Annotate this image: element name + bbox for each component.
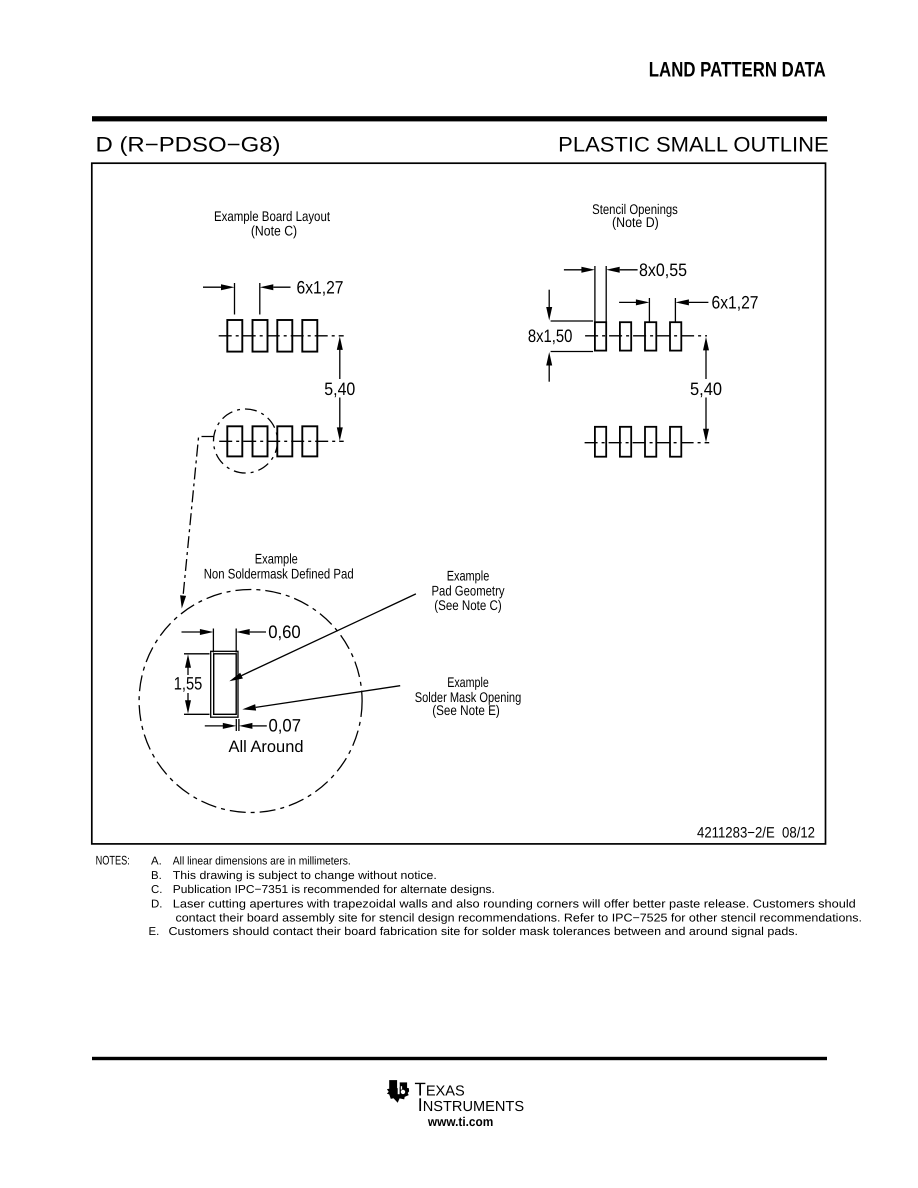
svg-text:www.ti.com: www.ti.com	[427, 1114, 493, 1129]
svg-text:All linear dimensions are in m: All linear dimensions are in millimeters…	[173, 856, 351, 868]
svg-text:5,40: 5,40	[690, 379, 722, 399]
svg-text:Example: Example	[447, 568, 490, 584]
svg-text:D.: D.	[151, 898, 162, 910]
svg-text:NOTES:: NOTES:	[96, 854, 130, 868]
svg-text:6x1,27: 6x1,27	[297, 278, 344, 298]
svg-text:(Note D): (Note D)	[612, 214, 659, 230]
svg-text:A.: A.	[151, 856, 162, 868]
svg-text:B.: B.	[151, 870, 162, 882]
svg-text:Example Board Layout: Example Board Layout	[214, 208, 330, 224]
svg-text:D (R−PDSO−G8): D (R−PDSO−G8)	[96, 134, 281, 157]
svg-text:All Around: All Around	[229, 738, 304, 756]
svg-text:6x1,27: 6x1,27	[712, 293, 759, 313]
svg-text:4211283−2/E 08/12: 4211283−2/E 08/12	[697, 825, 815, 842]
svg-text:E.: E.	[149, 926, 160, 938]
svg-text:This drawing is subject to cha: This drawing is subject to change withou…	[173, 870, 437, 882]
svg-text:Example: Example	[447, 674, 489, 690]
svg-text:1,55: 1,55	[174, 674, 203, 694]
svg-text:Non Soldermask Defined Pad: Non Soldermask Defined Pad	[204, 565, 354, 581]
svg-text:(Note C): (Note C)	[251, 223, 297, 239]
svg-text:(See Note C): (See Note C)	[434, 597, 502, 613]
svg-text:Example: Example	[255, 551, 298, 567]
svg-text:8x0,55: 8x0,55	[639, 260, 687, 280]
svg-text:PLASTIC SMALL OUTLINE: PLASTIC SMALL OUTLINE	[558, 134, 829, 157]
svg-text:8x1,50: 8x1,50	[528, 326, 573, 346]
svg-text:Customers should contact their: Customers should contact their board fab…	[169, 926, 799, 938]
svg-text:LAND PATTERN DATA: LAND PATTERN DATA	[649, 59, 826, 82]
svg-text:5,40: 5,40	[324, 379, 355, 399]
svg-text:0,60: 0,60	[268, 622, 301, 642]
svg-text:(See Note E): (See Note E)	[432, 702, 500, 718]
svg-text:0,07: 0,07	[269, 716, 302, 736]
svg-text:contact their board assembly s: contact their board assembly site for st…	[176, 913, 863, 925]
svg-text:Publication IPC−7351 is recomm: Publication IPC−7351 is recommended for …	[173, 884, 495, 896]
svg-text:Laser cutting apertures with t: Laser cutting apertures with trapezoidal…	[173, 898, 856, 910]
svg-text:C.: C.	[151, 884, 162, 896]
